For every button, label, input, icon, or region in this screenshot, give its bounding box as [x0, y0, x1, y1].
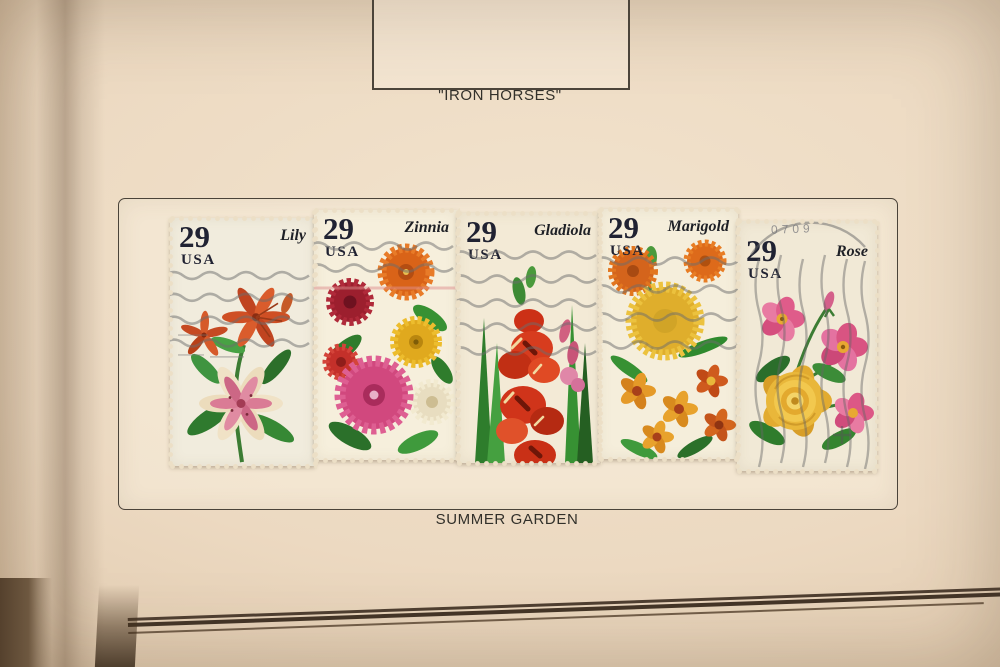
- album-corner-shadow: [0, 578, 52, 667]
- stamp-zinnia: 29 USA Zinnia: [314, 210, 458, 460]
- page-edge-line: [128, 592, 1000, 626]
- page-edge-shadow: [0, 0, 105, 667]
- stamp-rose: 29 USA Rose 0709: [737, 221, 877, 471]
- cancellation-marks: [457, 213, 600, 463]
- cancellation-marks: [599, 209, 738, 459]
- cancellation-marks: [170, 218, 315, 466]
- iron-horses-frame: [372, 0, 630, 90]
- iron-horses-caption: "IRON HORSES": [340, 87, 660, 104]
- summer-garden-caption: SUMMER GARDEN: [118, 511, 896, 528]
- page-fold-shadow: [95, 585, 139, 667]
- album-page-edge-lines: [128, 587, 1000, 633]
- cancellation-marks: [737, 221, 877, 471]
- stamp-marigold: 29 USA Marigold: [599, 209, 738, 459]
- postmark-digits: 0709: [771, 221, 814, 236]
- stamp-album-photo: "IRON HORSES" 29 USA Lily: [0, 0, 1000, 667]
- stamp-gladiola: 29 USA Gladiola: [457, 213, 600, 463]
- stamp-lily: 29 USA Lily: [170, 218, 315, 466]
- cancellation-marks: [314, 210, 458, 460]
